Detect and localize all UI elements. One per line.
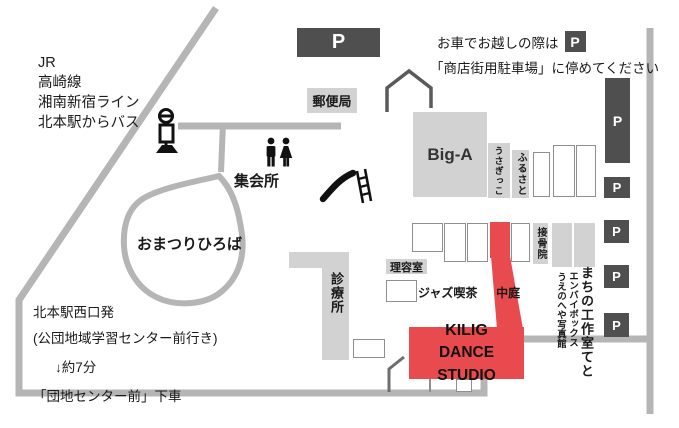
shop-box	[444, 223, 466, 262]
building-usagikko: うさぎっこ	[488, 143, 510, 198]
bus-route-note: 北本駅西口発 (公団地域学習センター前行き) ↓約7分 「団地センター前」下車	[33, 301, 218, 405]
parking-main: P	[297, 28, 380, 57]
restroom-icon	[267, 138, 293, 167]
shop-box	[412, 223, 443, 252]
building-furusato: ふるさと	[512, 150, 529, 198]
parking-small-1: P	[604, 177, 630, 198]
usagikko-label: うさぎっこ	[493, 146, 506, 196]
car-note-parking-icon: P	[565, 31, 586, 52]
post-office-label: 郵便局	[312, 91, 351, 110]
shop-box	[511, 223, 530, 262]
building-barber: 理容室	[386, 259, 427, 274]
building-osteopathic-clinic: 接骨院	[533, 223, 548, 264]
parking-small-3: P	[604, 265, 629, 288]
access-map: JR 高崎線 湘南新宿ライン 北本駅からバス P お車でお越しの際は P 「商店…	[0, 0, 679, 428]
bus-route-line3: ↓約7分	[33, 356, 218, 376]
shop-box	[553, 145, 575, 197]
jazz-cafe-courtyard-label: ジャズ喫茶 中庭	[418, 284, 520, 301]
barber-label: 理容室	[390, 259, 423, 275]
car-note-text1: お車でお越しの際は	[437, 32, 559, 52]
parking-small-4-label: P	[612, 318, 621, 333]
building-post-office: 郵便局	[307, 88, 357, 113]
road-branch	[221, 123, 223, 172]
train-line-bus: 北本駅からバス	[38, 113, 140, 133]
meeting-hall-label: 集会所	[234, 170, 279, 191]
car-note-line2: 「商店街用駐車場」に停めてください	[430, 57, 659, 77]
slide-icon	[323, 169, 371, 203]
shop-box	[576, 145, 596, 197]
big-a-label: Big-A	[427, 145, 472, 165]
courtyard-label: 中庭	[496, 286, 520, 300]
parking-small-3-label: P	[612, 269, 621, 284]
studio-name-line2: DANCE STUDIO	[409, 342, 524, 387]
shop-box	[386, 280, 417, 302]
building-box	[574, 223, 595, 267]
jazz-cafe-label: ジャズ喫茶	[418, 286, 477, 300]
furusato-label: ふるさと	[513, 152, 528, 196]
studio-callout-label: KILIG DANCE STUDIO	[409, 327, 524, 379]
parking-small-2-label: P	[612, 224, 621, 239]
shop-box	[467, 223, 488, 262]
parking-small-4: P	[604, 313, 629, 337]
festival-square-label: おまつりひろば	[137, 233, 242, 254]
studio-name-line1: KILIG	[445, 319, 488, 342]
parking-tall: P	[605, 78, 630, 163]
studio-building	[490, 222, 510, 258]
train-access-note: JR 高崎線 湘南新宿ライン 北本駅からバス	[38, 53, 140, 133]
envai-box-label: エンバイボックス	[565, 271, 579, 356]
bus-route-line4: 「団地センター前」下車	[33, 385, 218, 405]
building-box	[552, 223, 572, 267]
machi-workshop-label: まちの工作室てと	[577, 266, 596, 381]
entrance-arrow-icon	[387, 71, 431, 112]
shop-box	[533, 152, 550, 197]
clinic-label: 診療所	[327, 272, 346, 314]
path-corner-mark	[389, 357, 404, 392]
osteopathic-clinic-label: 接骨院	[533, 227, 548, 260]
train-line-jr: JR	[38, 53, 140, 73]
parking-small-1-label: P	[613, 180, 622, 195]
bus-route-line2: (公団地域学習センター前行き)	[33, 327, 218, 347]
bus-route-line1: 北本駅西口発	[33, 301, 218, 321]
uenoheya-photo-label: うえのへや写真館	[553, 272, 567, 357]
train-line-takasaki: 高崎線	[38, 73, 140, 93]
train-line-shonan: 湘南新宿ライン	[38, 93, 140, 113]
parking-main-label: P	[332, 31, 345, 54]
building-big-a: Big-A	[413, 112, 487, 197]
parking-small-2: P	[604, 220, 629, 243]
bus-stop-icon	[156, 110, 178, 154]
shop-box	[353, 339, 385, 358]
car-note-line1: お車でお越しの際は P	[437, 31, 586, 52]
parking-tall-label: P	[613, 113, 622, 129]
